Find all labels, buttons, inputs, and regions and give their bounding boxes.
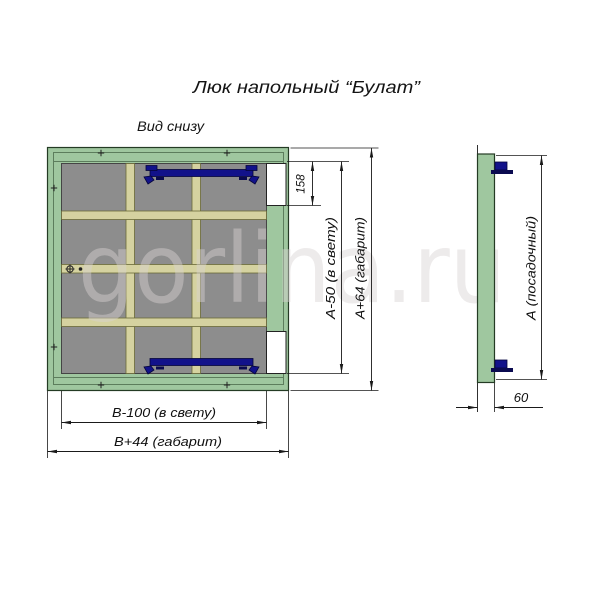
- view-label: Вид снизу: [137, 119, 205, 134]
- dim-label-height-clear: А-50 (в свету): [323, 217, 338, 320]
- dim-label-depth: 60: [514, 390, 529, 405]
- profile-bar: [478, 154, 495, 383]
- dim-label-height-overall: А+64 (габарит): [353, 217, 368, 320]
- dim-label-width-clear: В-100 (в свету): [112, 405, 216, 420]
- drawing-canvas: gorlina.ru 158 А-50 (в свету) А+64 (габа…: [0, 0, 600, 600]
- page-title: Люк напольный “Булат”: [192, 77, 421, 97]
- dimensions-main-bottom: В-100 (в свету) В+44 (габарит): [48, 391, 289, 458]
- watermark-text: gorlina.ru: [78, 213, 506, 325]
- dim-label-158: 158: [296, 174, 308, 194]
- hinge-cutout-top: [267, 164, 287, 206]
- hinge-cutout-bottom: [267, 332, 287, 374]
- dim-label-seat-height: А (посадочный): [524, 216, 539, 321]
- header: Люк напольный “Булат” Вид снизу: [137, 77, 421, 134]
- technical-drawing: gorlina.ru 158 А-50 (в свету) А+64 (габа…: [0, 0, 600, 600]
- dim-label-width-overall: В+44 (габарит): [114, 434, 222, 449]
